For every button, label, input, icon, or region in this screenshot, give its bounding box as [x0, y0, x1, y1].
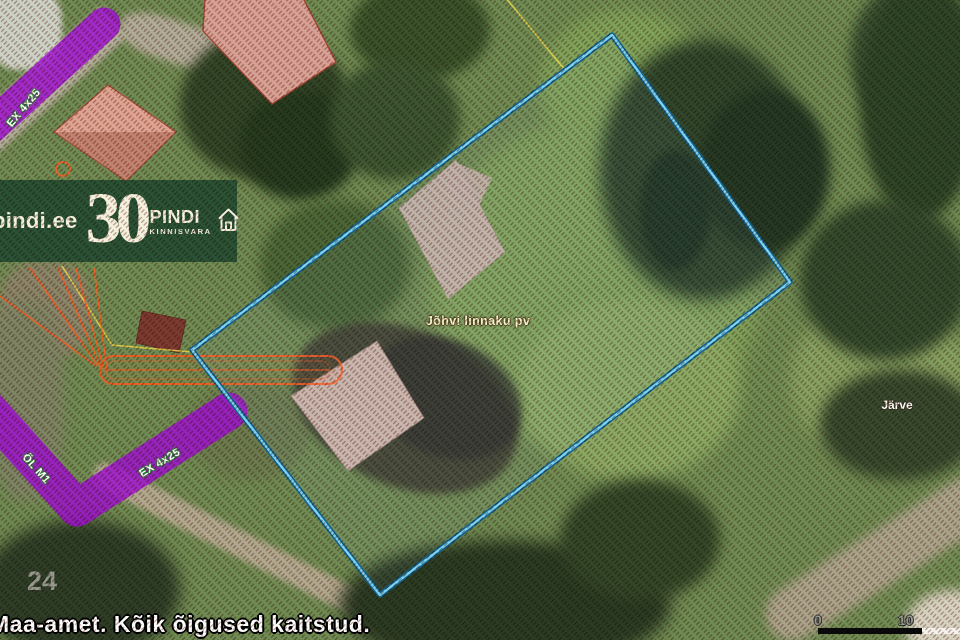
scalebar-segment-light [922, 628, 960, 634]
building-roof [203, 0, 336, 104]
banner-brand-name: PINDI [150, 208, 212, 226]
cadastral-line [505, 0, 565, 70]
building-roof [136, 311, 186, 353]
utility-corridor-purple [0, 398, 229, 508]
map-overlay-layers [0, 0, 960, 640]
copyright-text: Maa-amet. Kõik õigused kaitstud. [0, 611, 370, 638]
map-viewport[interactable]: EX 4x25 ÕL M1 EX 4x25 Jõhvi linnaku pv J… [0, 0, 960, 640]
scalebar-segment-dark [818, 628, 922, 634]
banner-site-text: pindi.ee [0, 208, 78, 234]
scalebar-start-label: 0 [814, 612, 822, 628]
utility-line [0, 296, 96, 366]
house-icon [217, 206, 240, 238]
scalebar-end-label: 10 [898, 612, 914, 628]
parcel-boundary-layer [192, 35, 790, 595]
watermark-banner: pindi.ee 30 PINDI KINNISVARA [0, 180, 237, 262]
banner-brand-subtitle: KINNISVARA [150, 228, 212, 236]
utility-well [56, 162, 70, 176]
banner-anniversary-number: 30 [86, 183, 146, 253]
